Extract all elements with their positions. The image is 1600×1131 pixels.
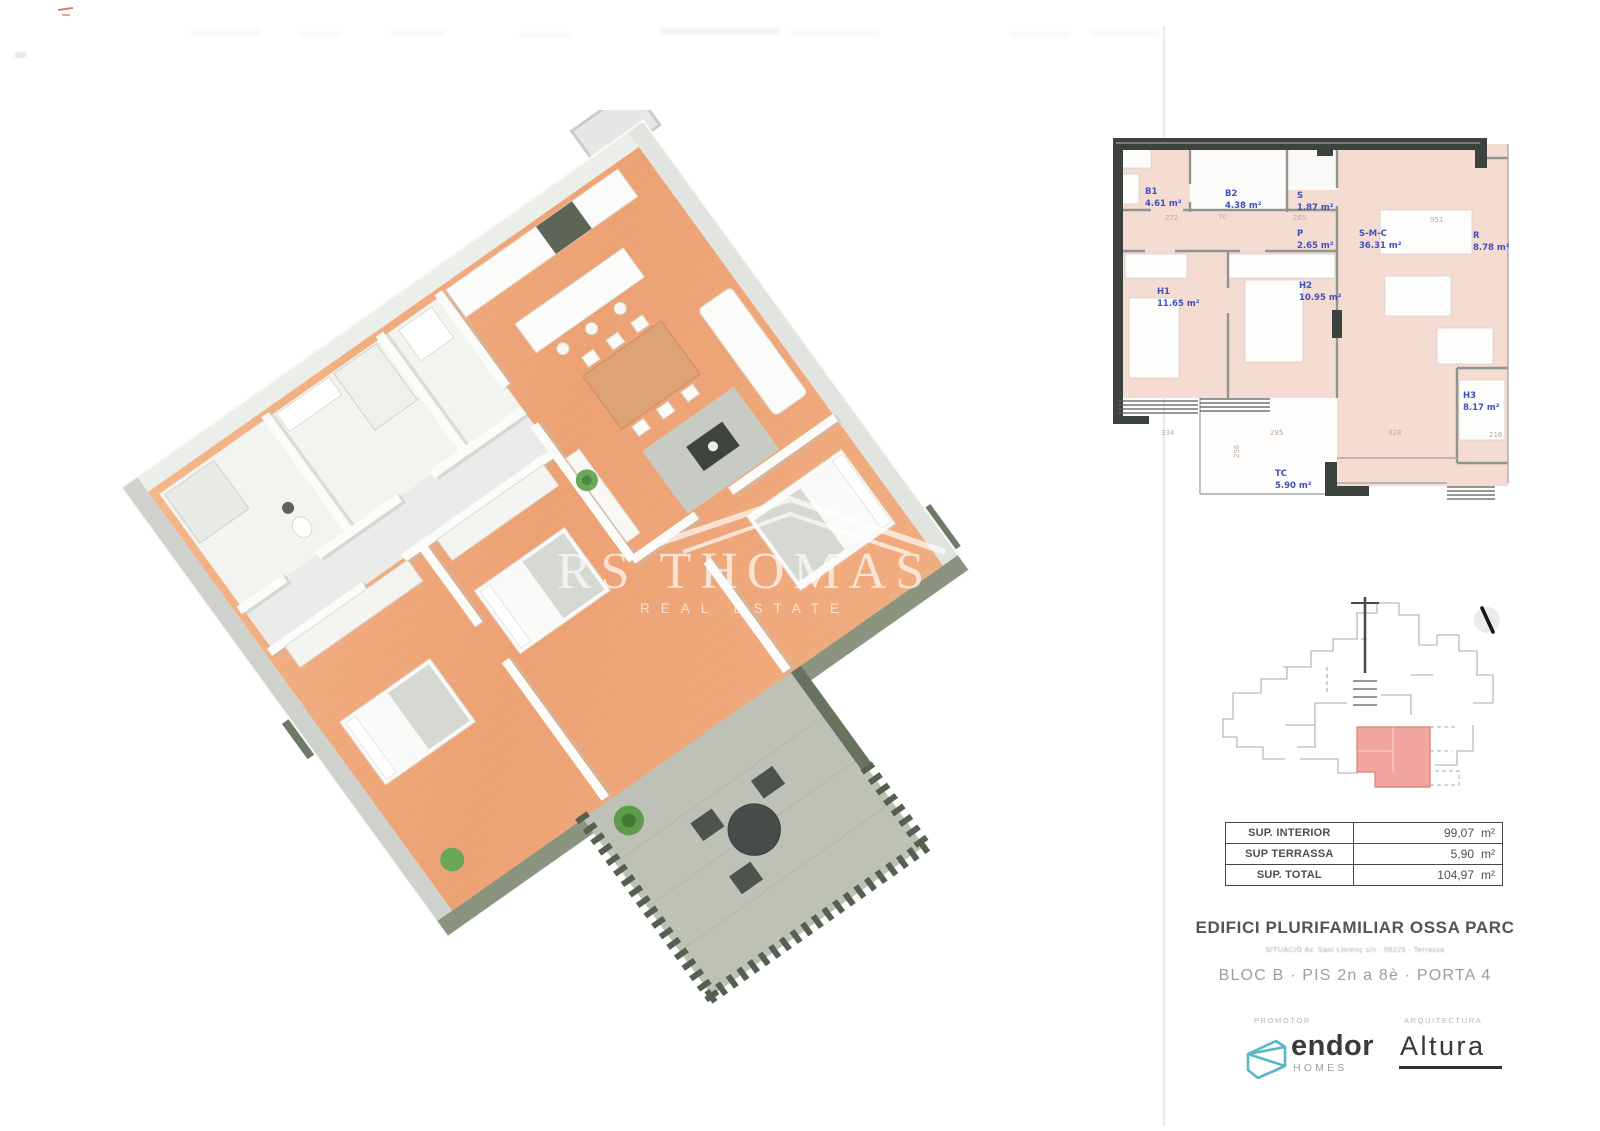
building-key-plan <box>1215 575 1505 790</box>
room-label-p: P2.65 m² <box>1297 228 1334 252</box>
project-title: EDIFICI PLURIFAMILIAR OSSA PARC <box>1195 918 1515 938</box>
room-label-h2: H210.95 m² <box>1299 280 1341 304</box>
architect-underline <box>1399 1066 1502 1069</box>
room-label-h1: H111.65 m² <box>1157 286 1199 310</box>
area-value: 5,90m² <box>1353 844 1502 865</box>
scan-streak <box>790 30 880 35</box>
promotor-name: endor <box>1291 1030 1374 1063</box>
promotor-sub: HOMES <box>1293 1062 1348 1074</box>
room-label-smc: S-M-C36.31 m² <box>1359 228 1401 252</box>
scan-streak <box>190 30 260 35</box>
dim-text: 265 <box>1293 214 1306 222</box>
dim-text: 334 <box>1161 429 1174 437</box>
scan-streak <box>660 28 780 34</box>
watermark-subtitle: REAL ESTATE <box>640 601 850 616</box>
room-label-b1: B14.61 m² <box>1145 186 1182 210</box>
room-label-h3: H38.17 m² <box>1463 390 1500 414</box>
unit-identifier: BLOC B · PIS 2n a 8è · PORTA 4 <box>1195 967 1515 985</box>
table-row: SUP. TOTAL 104,97m² <box>1226 865 1503 886</box>
floorplan-2d: B14.61 m² B24.38 m² S1.87 m² P2.65 m² S-… <box>1085 128 1530 518</box>
promotor-label: PROMOTOR <box>1254 1016 1311 1025</box>
endor-logo-icon <box>1241 1033 1289 1079</box>
architect-name: Altura <box>1400 1031 1486 1062</box>
dim-text: 70 <box>1218 213 1227 221</box>
surface-areas-table: SUP. INTERIOR 99,07m² SUP TERRASSA 5,90m… <box>1225 822 1503 886</box>
scan-smudge <box>14 52 27 58</box>
compass-icon <box>1474 607 1500 633</box>
dim-text: 216 <box>1489 431 1502 439</box>
project-address: SITUACIÓ Av. Sant Llorenç s/n · 08225 · … <box>1195 947 1515 954</box>
scanned-floorplan-sheet: RS THOMAS REAL ESTATE <box>0 0 1600 1131</box>
room-tc-fill <box>1200 398 1337 494</box>
area-value: 99,07m² <box>1353 823 1502 844</box>
dim-text: 272 <box>1165 214 1178 222</box>
scan-streak <box>1010 32 1070 36</box>
scan-streak <box>300 32 340 36</box>
room-label-tc: TC5.90 m² <box>1275 468 1312 492</box>
scan-streak <box>520 33 570 37</box>
area-label: SUP. TOTAL <box>1226 865 1354 886</box>
area-label: SUP TERRASSA <box>1226 844 1354 865</box>
dim-text: 256 <box>1233 445 1241 458</box>
floorplan-3d-render: RS THOMAS REAL ESTATE <box>100 110 1060 1030</box>
table-row: SUP TERRASSA 5,90m² <box>1226 844 1503 865</box>
architect-label: ARQUITECTURA <box>1404 1016 1482 1025</box>
table-row: SUP. INTERIOR 99,07m² <box>1226 823 1503 844</box>
dim-text: 951 <box>1430 216 1443 224</box>
dim-text: 285 <box>1270 429 1283 437</box>
watermark-title: RS THOMAS <box>557 543 933 600</box>
area-value: 104,97m² <box>1353 865 1502 886</box>
dim-text: 328 <box>1388 429 1401 437</box>
room-label-s: S1.87 m² <box>1297 190 1334 214</box>
room-label-b2: B24.38 m² <box>1225 188 1262 212</box>
scan-streak <box>1090 30 1160 35</box>
scan-pen-mark <box>62 14 70 17</box>
project-info: EDIFICI PLURIFAMILIAR OSSA PARC SITUACIÓ… <box>1195 918 1515 985</box>
scan-pen-mark <box>58 7 73 11</box>
area-label: SUP. INTERIOR <box>1226 823 1354 844</box>
scan-streak <box>390 30 445 35</box>
room-label-r: R8.78 m² <box>1473 230 1510 254</box>
